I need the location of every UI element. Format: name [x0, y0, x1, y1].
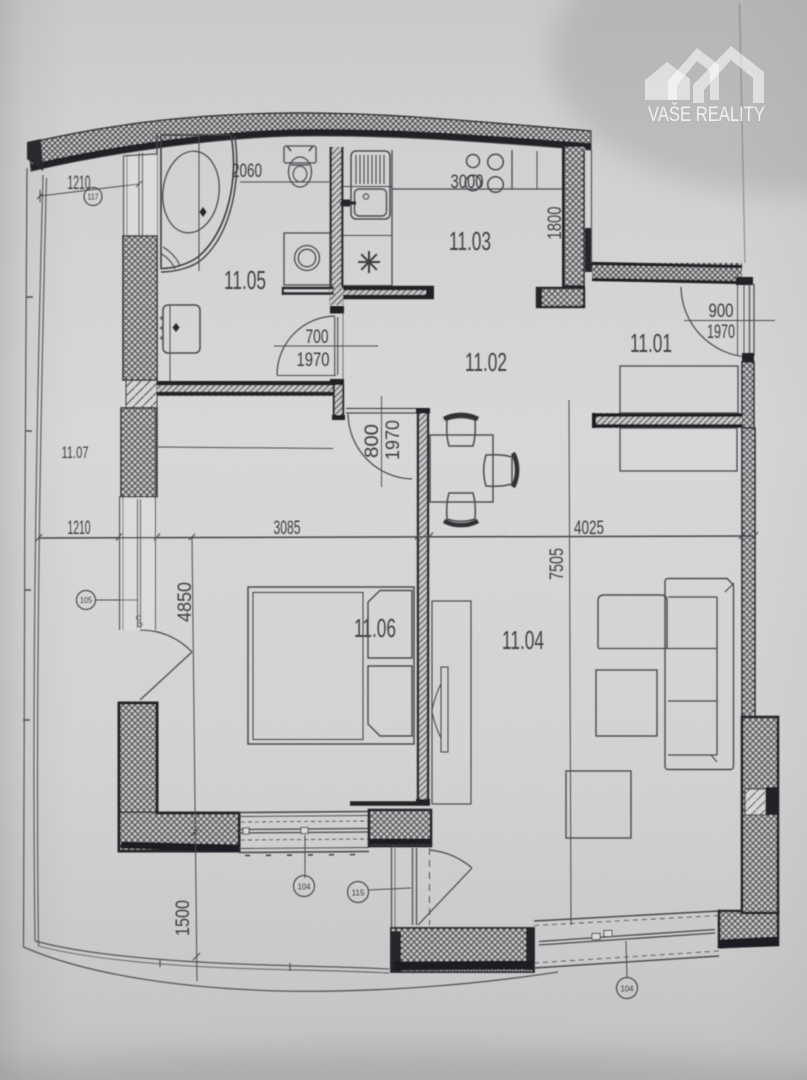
svg-text:700: 700 — [306, 326, 329, 348]
svg-text:1500: 1500 — [172, 900, 194, 936]
svg-text:900: 900 — [709, 300, 734, 322]
svg-text:105: 105 — [80, 595, 92, 605]
svg-text:11.03: 11.03 — [449, 226, 491, 256]
svg-text:4025: 4025 — [574, 517, 604, 539]
svg-text:115: 115 — [352, 888, 365, 898]
svg-text:1210: 1210 — [68, 517, 91, 539]
svg-text:11.01: 11.01 — [630, 328, 672, 358]
svg-text:800: 800 — [361, 424, 383, 458]
svg-text:7505: 7505 — [546, 548, 568, 580]
svg-text:1210: 1210 — [68, 172, 91, 194]
svg-text:11.07: 11.07 — [62, 443, 89, 462]
svg-text:4850: 4850 — [174, 582, 196, 622]
svg-text:1970: 1970 — [707, 321, 735, 343]
svg-text:104: 104 — [298, 882, 311, 892]
svg-text:11.06: 11.06 — [354, 613, 396, 643]
svg-text:11.04: 11.04 — [502, 625, 544, 655]
svg-text:1970: 1970 — [297, 349, 330, 371]
svg-text:1970: 1970 — [382, 420, 404, 460]
svg-text:2060: 2060 — [232, 160, 262, 182]
svg-text:VAŠE REALITY: VAŠE REALITY — [648, 103, 765, 126]
svg-text:3085: 3085 — [274, 517, 301, 539]
svg-text:3000: 3000 — [451, 171, 484, 193]
svg-text:11.02: 11.02 — [465, 347, 507, 377]
svg-text:1800: 1800 — [544, 206, 566, 239]
svg-text:11.05: 11.05 — [224, 265, 266, 295]
svg-text:104: 104 — [621, 984, 634, 994]
